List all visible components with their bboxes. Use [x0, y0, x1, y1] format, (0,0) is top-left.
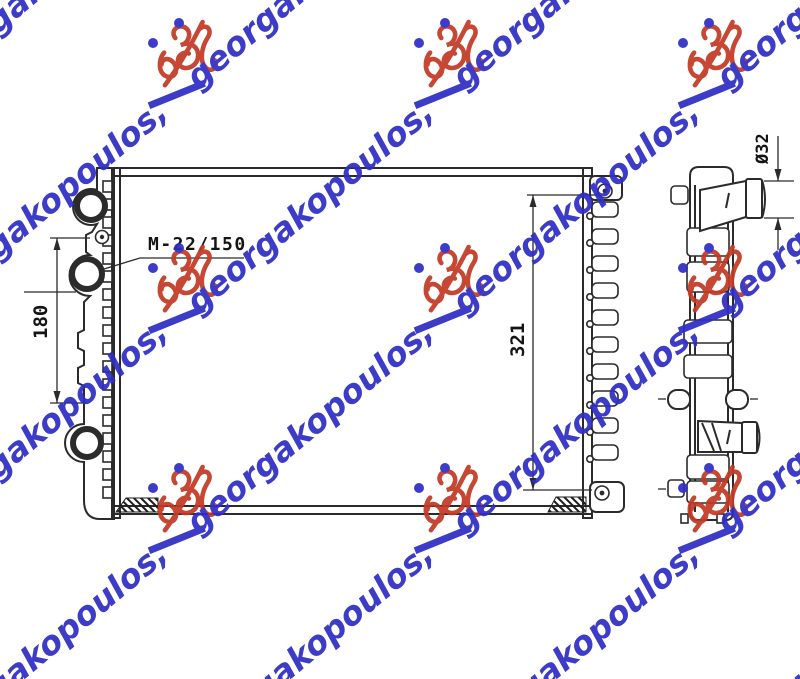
side-lower-pipe [698, 421, 760, 453]
core-top-edge [112, 168, 592, 176]
side-bottom-tab [668, 480, 684, 497]
bleed-screw [96, 231, 109, 244]
side-clip-left [668, 390, 690, 409]
side-clip-right [726, 390, 748, 409]
thread-size-label: M-22/150 [148, 234, 247, 255]
side-top-tab [671, 186, 688, 204]
side-view: Ø32 [658, 133, 794, 523]
hatched-pad-right [548, 497, 586, 512]
dimension-321: 321 [507, 195, 598, 490]
core-right-edge [583, 168, 592, 518]
core-height-dimension-label: 321 [507, 323, 529, 357]
core-bottom-edge [112, 506, 592, 514]
left-tank [24, 168, 114, 519]
hatched-pad-left [116, 498, 158, 512]
pipe-diameter-dimension-label: Ø32 [753, 133, 773, 165]
radiator-drawing-canvas: 180 321 M-22/150 [0, 0, 800, 679]
screw-hole-top [598, 184, 612, 198]
technical-drawing: 180 321 M-22/150 [0, 0, 800, 679]
screw-hole-bottom [595, 486, 609, 500]
front-view [24, 168, 624, 519]
tank-height-dimension-label: 180 [30, 305, 52, 339]
right-tank [587, 176, 624, 512]
thread-size-callout: M-22/150 [104, 234, 247, 269]
